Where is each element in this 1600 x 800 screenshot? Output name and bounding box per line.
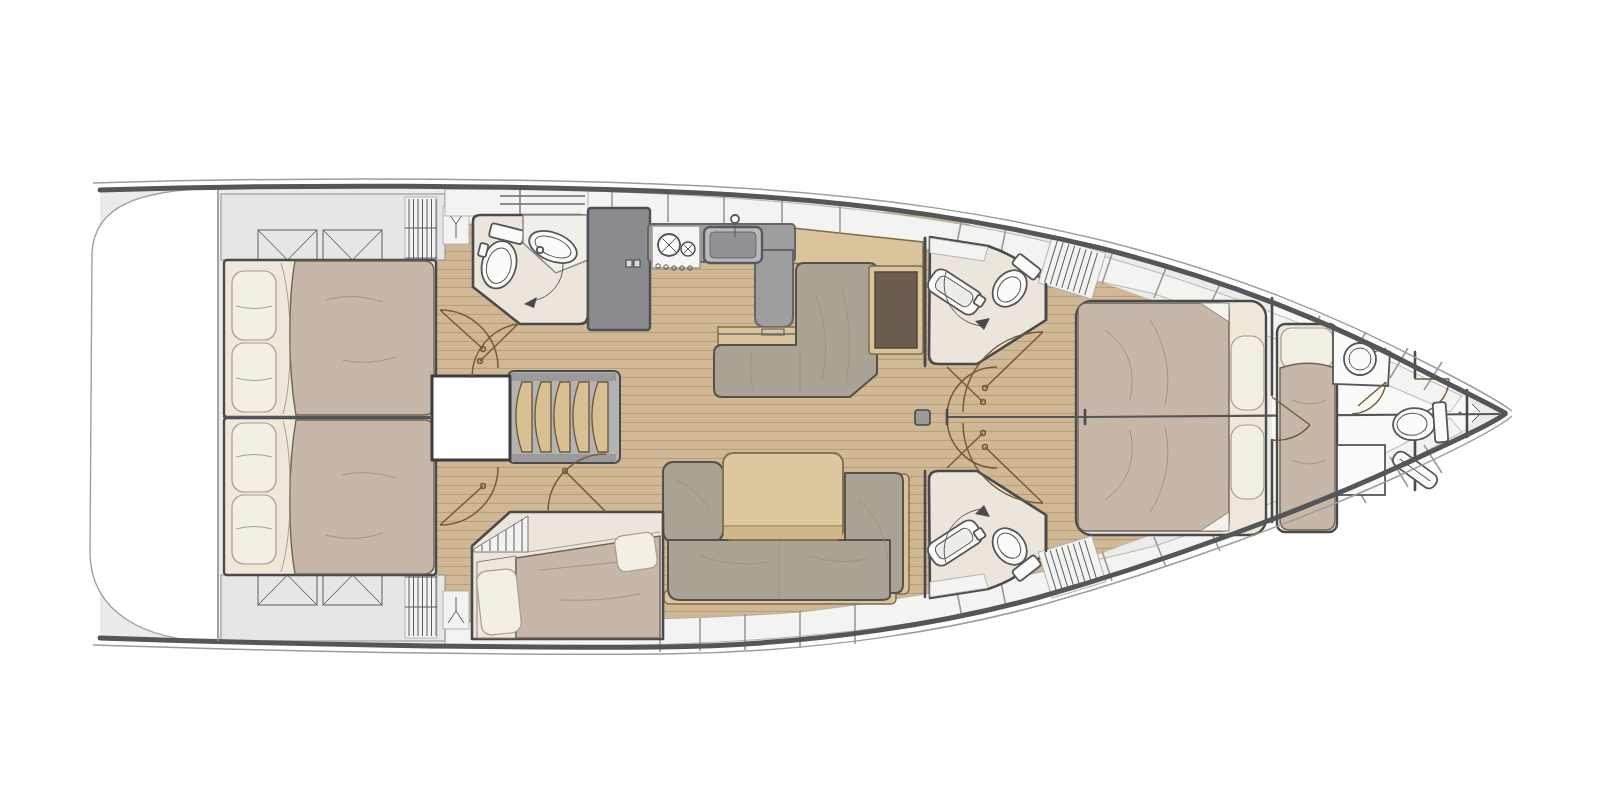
stove-icon xyxy=(652,226,700,270)
aft-berth-duvet xyxy=(290,261,434,415)
refrigerator xyxy=(588,208,650,330)
engine-box xyxy=(432,376,510,460)
bunk-cabin xyxy=(472,512,663,639)
faucet-icon xyxy=(537,247,543,253)
washbasin-icon xyxy=(1333,326,1390,386)
companionway xyxy=(432,371,620,463)
pillow xyxy=(1231,425,1264,499)
pillow xyxy=(614,531,659,572)
yacht-floorplan-page xyxy=(0,0,1600,800)
chart-table xyxy=(869,266,923,354)
swim-platform xyxy=(90,188,218,642)
aft-head-cabinet xyxy=(445,189,588,216)
settee-arm-left xyxy=(663,462,723,542)
pillow xyxy=(232,271,276,340)
yacht-floorplan-diagram xyxy=(0,0,1600,800)
salon-table xyxy=(723,453,843,540)
pillow xyxy=(1281,328,1333,368)
mast-step-icon xyxy=(915,410,930,425)
pillow xyxy=(476,568,522,636)
bow-locker xyxy=(1337,445,1385,495)
pillow xyxy=(232,343,276,412)
pillow xyxy=(1231,336,1264,410)
